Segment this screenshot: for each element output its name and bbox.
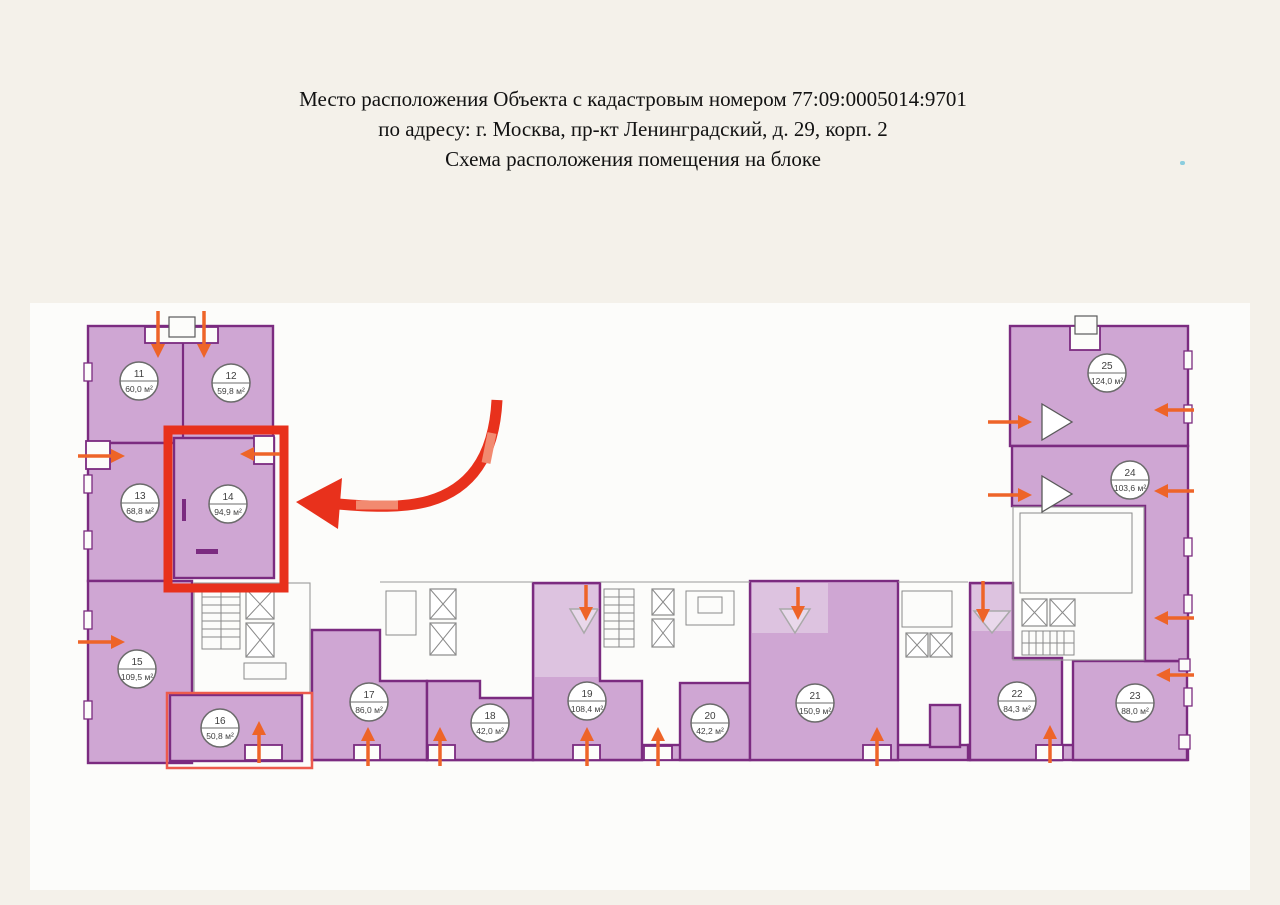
room-badge-18: 18 42,0 м² xyxy=(471,704,509,742)
scan-artifact-dot xyxy=(1180,161,1185,165)
room-number: 11 xyxy=(134,369,145,380)
room-number: 24 xyxy=(1124,468,1136,479)
room-area: 109,5 м² xyxy=(121,672,153,682)
entrance-notch xyxy=(245,745,282,760)
room-badge-15: 15 109,5 м² xyxy=(118,650,156,688)
floor-plan-sheet: 11 60,0 м² 12 59,8 м² 13 68,8 м² 14 94,9… xyxy=(30,303,1250,890)
window-notch xyxy=(1179,735,1190,749)
room-area: 42,2 м² xyxy=(696,726,724,736)
room-badge-24: 24 103,6 м² xyxy=(1111,461,1149,499)
room-badge-11: 11 60,0 м² xyxy=(120,362,158,400)
elevator-core xyxy=(386,589,456,655)
elevator-icon xyxy=(1022,599,1047,626)
service-room xyxy=(902,591,952,627)
elevator-icon xyxy=(906,633,928,657)
service-room xyxy=(386,591,416,635)
room-19-loggia xyxy=(535,585,598,677)
room-area: 59,8 м² xyxy=(217,386,245,396)
room-area: 42,0 м² xyxy=(476,726,504,736)
header-line-address: по адресу: г. Москва, пр-кт Ленинградски… xyxy=(0,114,1266,144)
room-24-shape xyxy=(1012,446,1188,661)
room-area: 84,3 м² xyxy=(1003,704,1031,714)
room-area: 50,8 м² xyxy=(206,731,234,741)
room-number: 18 xyxy=(484,711,496,722)
room-number: 13 xyxy=(134,491,146,502)
room-badge-12: 12 59,8 м² xyxy=(212,364,250,402)
service-closet xyxy=(930,705,960,747)
room-area: 88,0 м² xyxy=(1121,706,1149,716)
stair-core xyxy=(194,583,310,693)
porch-outline xyxy=(169,317,195,337)
room-badge-19: 19 108,4 м² xyxy=(568,682,606,720)
room-number: 21 xyxy=(809,691,821,702)
document-header: Место расположения Объекта с кадастровым… xyxy=(0,84,1266,174)
room-number: 16 xyxy=(214,716,226,727)
elevator-icon xyxy=(1050,599,1075,626)
room-badge-20: 20 42,2 м² xyxy=(691,704,729,742)
lobby-room xyxy=(1020,513,1132,593)
room-area: 68,8 м² xyxy=(126,506,154,516)
room-badge-22: 22 84,3 м² xyxy=(998,682,1036,720)
service-room xyxy=(686,591,734,625)
header-line-title: Схема расположения помещения на блоке xyxy=(0,144,1266,174)
room-number: 23 xyxy=(1129,691,1141,702)
service-room xyxy=(698,597,722,613)
room-area: 108,4 м² xyxy=(571,704,603,714)
stairs-icon xyxy=(604,589,634,647)
elevator-icon xyxy=(652,619,674,647)
elevator-icon xyxy=(652,589,674,615)
room-number: 20 xyxy=(704,711,716,722)
room-badge-16: 16 50,8 м² xyxy=(201,709,239,747)
stair-core xyxy=(1013,507,1144,660)
entrance-notch xyxy=(254,436,274,464)
elevator-icon xyxy=(930,633,952,657)
room-number: 22 xyxy=(1011,689,1023,700)
elevator-icon xyxy=(246,589,274,619)
stairs-icon xyxy=(202,589,240,649)
floor-plan: 11 60,0 м² 12 59,8 м² 13 68,8 м² 14 94,9… xyxy=(30,303,1250,890)
elevator-icon xyxy=(430,623,456,655)
elevator-core xyxy=(902,591,952,657)
room-badge-25: 25 124,0 м² xyxy=(1088,354,1126,392)
elevator-icon xyxy=(430,589,456,619)
elevator-icon xyxy=(246,623,274,657)
room-area: 86,0 м² xyxy=(355,705,383,715)
room-area: 103,6 м² xyxy=(1114,483,1146,493)
room-number: 25 xyxy=(1101,361,1113,372)
room-number: 17 xyxy=(363,690,375,701)
stair-core xyxy=(604,589,734,647)
room-area: 60,0 м² xyxy=(125,384,153,394)
room-number: 19 xyxy=(581,689,593,700)
room-badge-17: 17 86,0 м² xyxy=(350,683,388,721)
header-line-cadastral: Место расположения Объекта с кадастровым… xyxy=(0,84,1266,114)
stairs-icon xyxy=(1022,631,1074,655)
room-number: 12 xyxy=(225,371,237,382)
room-area: 150,9 м² xyxy=(799,706,831,716)
room-area: 124,0 м² xyxy=(1091,376,1123,386)
room-badge-23: 23 88,0 м² xyxy=(1116,684,1154,722)
room-number: 15 xyxy=(131,657,143,668)
pointer-arrow xyxy=(296,400,497,529)
porch-outline xyxy=(1075,316,1097,334)
room-14-wall-detail xyxy=(182,499,186,521)
window-notch xyxy=(1179,659,1190,671)
room-14-wall-detail xyxy=(196,549,218,554)
room-badge-21: 21 150,9 м² xyxy=(796,684,834,722)
room-badge-13: 13 68,8 м² xyxy=(121,484,159,522)
room-area: 94,9 м² xyxy=(214,507,242,517)
entrance-arrow-down xyxy=(151,311,990,623)
room-badge-14: 14 94,9 м² xyxy=(209,485,247,523)
room-number: 14 xyxy=(222,492,234,503)
